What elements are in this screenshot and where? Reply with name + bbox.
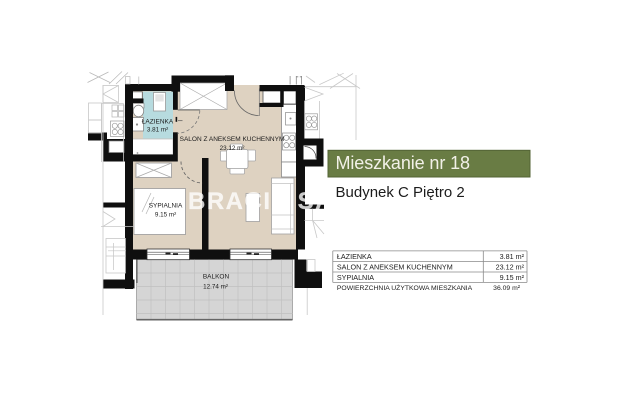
svg-text:3.81 m²: 3.81 m² bbox=[147, 127, 168, 134]
svg-text:23.12 m²: 23.12 m² bbox=[220, 145, 245, 152]
svg-text:ŁAZIENKA: ŁAZIENKA bbox=[142, 119, 174, 126]
svg-text:Mieszkanie nr 18: Mieszkanie nr 18 bbox=[336, 153, 471, 173]
svg-text:SALON Z ANEKSEM KUCHENNYM: SALON Z ANEKSEM KUCHENNYM bbox=[337, 263, 453, 272]
svg-text:36.09 m²: 36.09 m² bbox=[493, 285, 521, 292]
svg-text:3.81 m²: 3.81 m² bbox=[500, 252, 525, 261]
svg-text:9.15 m²: 9.15 m² bbox=[500, 273, 525, 282]
svg-text:ŁAZIENKA: ŁAZIENKA bbox=[337, 252, 372, 261]
svg-text:SALON Z ANEKSEM KUCHENNYM: SALON Z ANEKSEM KUCHENNYM bbox=[180, 136, 285, 143]
svg-text:POWIERZCHNIA UŻYTKOWA MIESZKAN: POWIERZCHNIA UŻYTKOWA MIESZKANIA bbox=[337, 283, 473, 292]
svg-text:SYPIALNIA: SYPIALNIA bbox=[337, 273, 374, 282]
svg-text:BALKON: BALKON bbox=[203, 274, 230, 281]
svg-text:Budynek C Piętro 2: Budynek C Piętro 2 bbox=[336, 184, 465, 201]
svg-text:23.12 m²: 23.12 m² bbox=[496, 263, 525, 272]
svg-text:9.15 m²: 9.15 m² bbox=[155, 212, 176, 219]
svg-text:BRACIA SA: BRACIA SA bbox=[188, 188, 334, 215]
svg-text:SYPIALNIA: SYPIALNIA bbox=[149, 203, 183, 210]
svg-text:12.74 m²: 12.74 m² bbox=[203, 284, 228, 291]
